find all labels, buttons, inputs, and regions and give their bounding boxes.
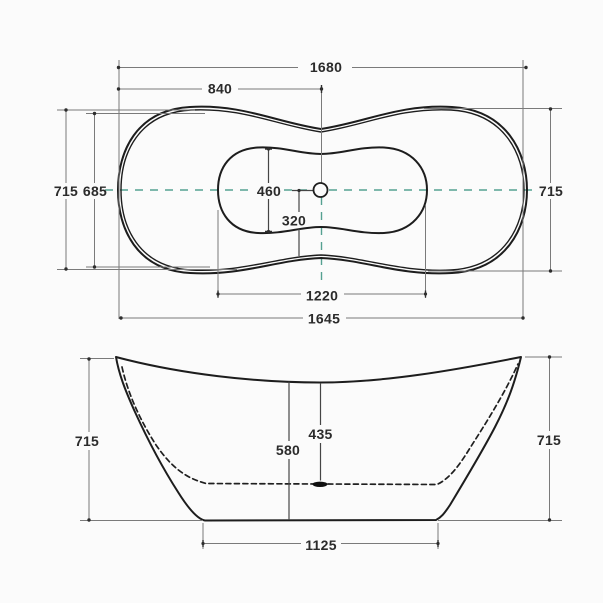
dim-basin-length: 1220 — [216, 288, 427, 304]
front-view: 715 715 435 580 1125 — [75, 355, 562, 553]
dim-width-inner: 685 — [83, 112, 107, 269]
dim-height-right-label: 715 — [537, 432, 561, 448]
dim-basin-width-label: 460 — [257, 183, 281, 199]
dim-drain-to-edge: 320 — [282, 189, 313, 256]
dim-length-base: 1645 — [119, 311, 524, 327]
dim-height-left: 715 — [75, 357, 99, 521]
dim-depth-wall-label: 580 — [276, 442, 300, 458]
dim-depth-inner: 435 — [308, 383, 332, 481]
drain-circle — [314, 183, 328, 197]
dim-basin-width: 460 — [257, 147, 281, 233]
dim-length-half: 840 — [117, 81, 323, 97]
dim-width-overall-right-label: 715 — [539, 183, 563, 199]
dim-length-overall: 1680 — [117, 59, 528, 75]
plan-view: 1680 840 715 685 715 — [54, 59, 563, 327]
dim-width-overall-left: 715 — [54, 108, 78, 270]
waste-drain-mark — [313, 482, 328, 487]
dim-length-overall-label: 1680 — [310, 59, 342, 75]
dim-depth-wall: 580 — [276, 382, 300, 521]
dim-height-right: 715 — [537, 355, 561, 521]
dim-width-overall-right: 715 — [539, 107, 563, 272]
dim-base-length-label: 1125 — [305, 537, 337, 553]
drawing-svg: 1680 840 715 685 715 — [0, 0, 603, 603]
dim-height-left-label: 715 — [75, 433, 99, 449]
dim-depth-inner-label: 435 — [308, 426, 332, 442]
dim-width-overall-left-label: 715 — [54, 183, 78, 199]
bathtub-technical-drawing: 1680 840 715 685 715 — [0, 0, 603, 603]
dim-length-base-label: 1645 — [308, 311, 340, 327]
dim-length-half-label: 840 — [208, 81, 232, 97]
dim-basin-length-label: 1220 — [306, 288, 338, 304]
dim-base-length: 1125 — [201, 537, 439, 553]
dim-drain-to-edge-label: 320 — [282, 213, 306, 229]
dim-width-inner-label: 685 — [83, 183, 107, 199]
